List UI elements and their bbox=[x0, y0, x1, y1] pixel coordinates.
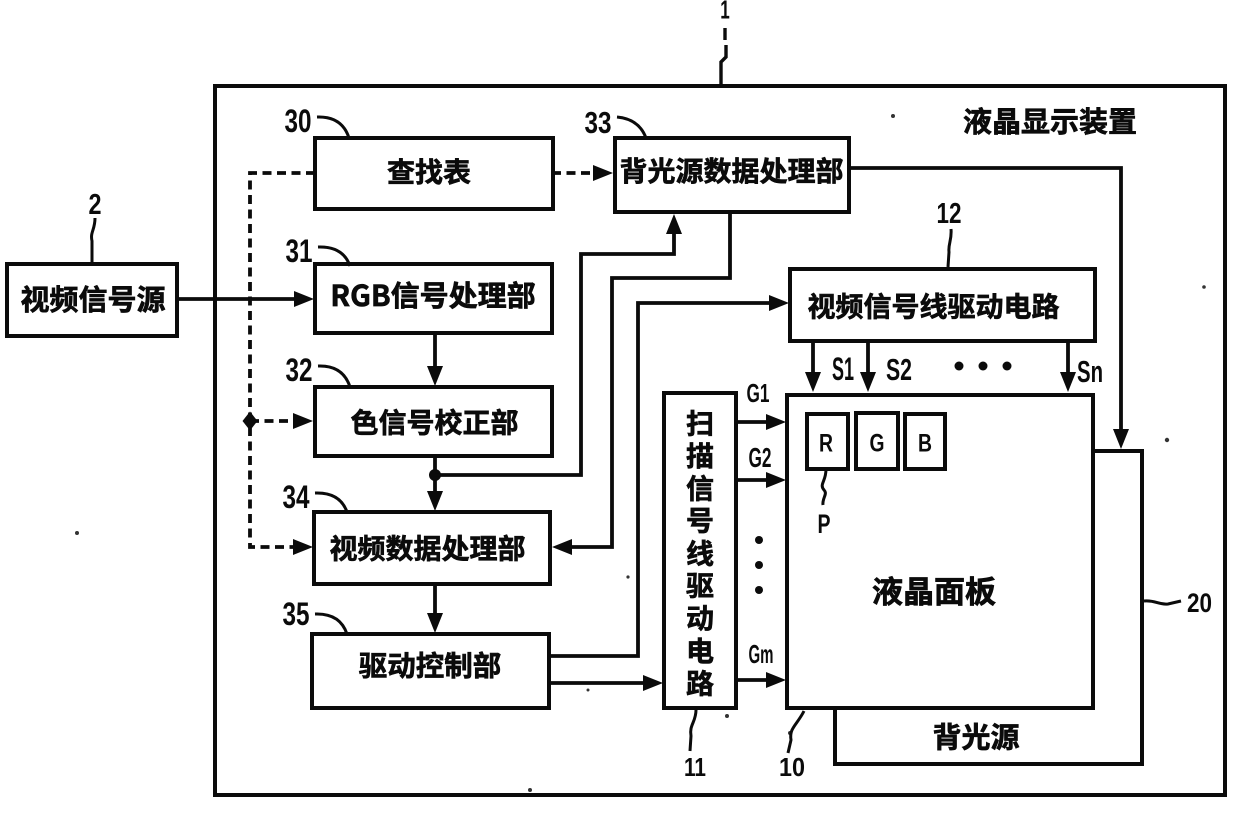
svg-text:2: 2 bbox=[89, 189, 102, 221]
svg-text:20: 20 bbox=[1187, 588, 1212, 618]
svg-text:G2: G2 bbox=[749, 442, 772, 473]
svg-text:32: 32 bbox=[286, 352, 313, 388]
svg-text:Sn: Sn bbox=[1077, 354, 1103, 389]
svg-text:R: R bbox=[819, 430, 833, 458]
svg-text:10: 10 bbox=[779, 752, 805, 782]
svg-text:30: 30 bbox=[285, 103, 312, 139]
svg-text:31: 31 bbox=[286, 233, 313, 269]
svg-text:12: 12 bbox=[937, 198, 962, 230]
svg-text:S1: S1 bbox=[832, 351, 854, 387]
svg-text:35: 35 bbox=[283, 596, 310, 632]
svg-text:11: 11 bbox=[684, 752, 706, 782]
svg-text:G1: G1 bbox=[747, 378, 770, 408]
svg-text:34: 34 bbox=[283, 479, 310, 515]
svg-text:B: B bbox=[918, 430, 932, 458]
svg-text:G: G bbox=[870, 430, 885, 458]
svg-text:1: 1 bbox=[720, 0, 730, 25]
svg-text:P: P bbox=[818, 509, 831, 539]
svg-text:S2: S2 bbox=[886, 352, 912, 387]
svg-text:33: 33 bbox=[585, 105, 612, 140]
svg-text:Gm: Gm bbox=[749, 639, 774, 669]
